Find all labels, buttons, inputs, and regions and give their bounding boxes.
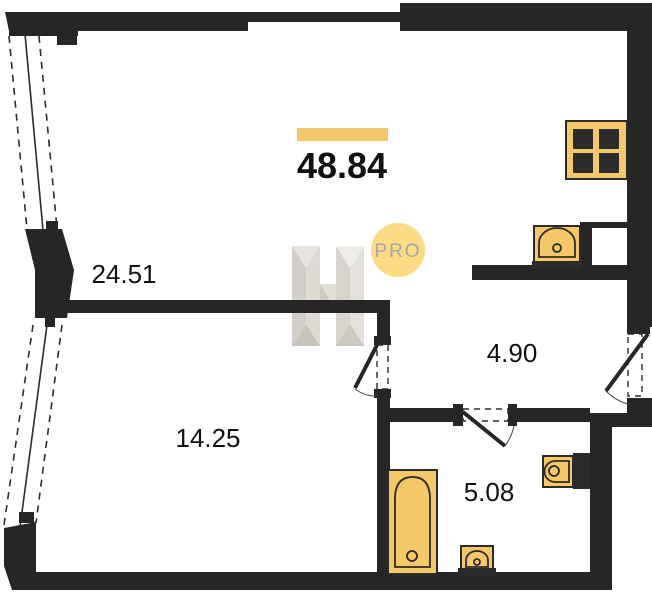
h-logo (292, 246, 364, 346)
room-label-living: 24.51 (91, 259, 156, 289)
room-label-bedroom: 14.25 (175, 423, 240, 453)
floor-plan-canvas: 48.84 PRO 24.51 14.25 4.90 5.08 (0, 0, 652, 600)
floor-plan: 48.84 PRO 24.51 14.25 4.90 5.08 (0, 0, 652, 600)
total-area-bar (297, 128, 388, 141)
kitchen-sink-icon (532, 226, 582, 269)
room-label-bathroom: 5.08 (464, 477, 515, 507)
bedroom-door-icon (355, 345, 388, 396)
room-label-hallway: 4.90 (487, 338, 538, 368)
stove-icon (566, 121, 627, 179)
pro-badge-label: PRO (374, 241, 421, 262)
bathtub-icon (388, 470, 437, 574)
bathroom-door-icon (463, 409, 514, 446)
total-area-label: 48.84 (297, 145, 387, 186)
entrance-door-icon (606, 334, 648, 404)
bath-sink-icon (458, 546, 496, 576)
pro-badge: PRO (371, 223, 425, 277)
total-area-badge: 48.84 (297, 128, 388, 186)
window-bottom-left-icon (4, 325, 62, 527)
toilet-icon (543, 453, 590, 489)
window-top-left-icon (9, 34, 57, 230)
